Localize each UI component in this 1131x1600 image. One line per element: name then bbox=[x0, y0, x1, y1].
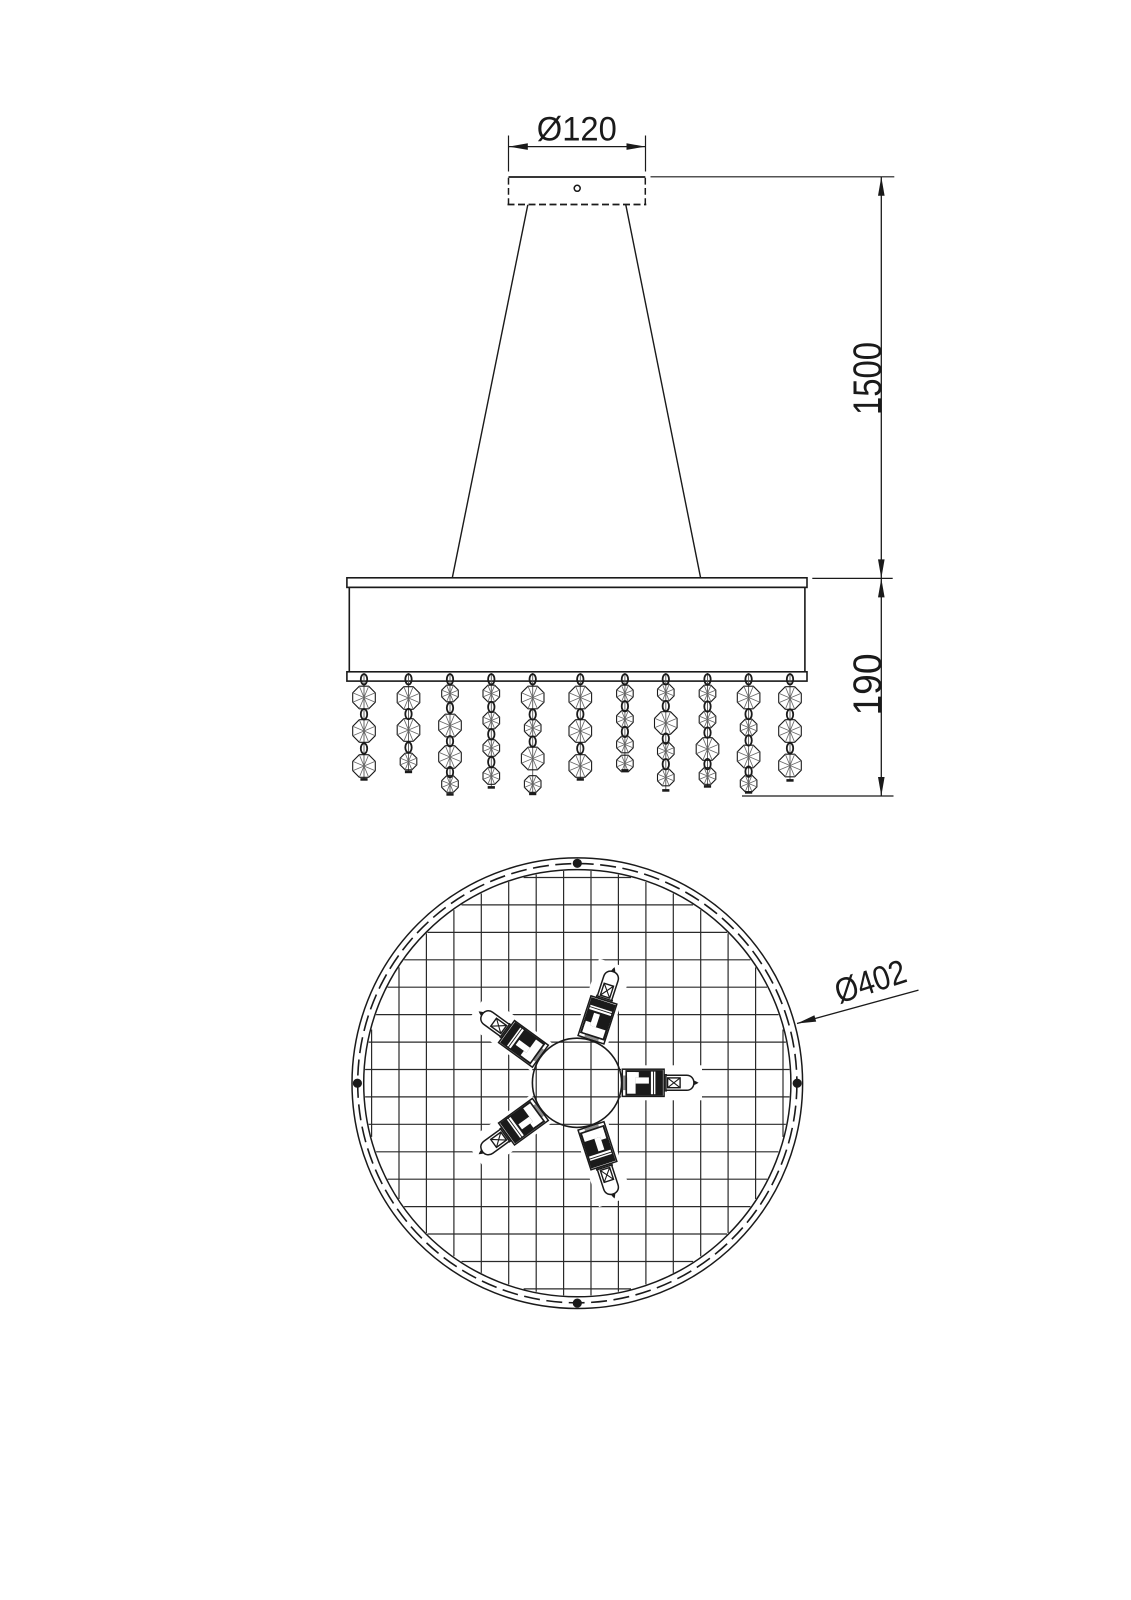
svg-text:1500: 1500 bbox=[846, 342, 890, 415]
svg-text:Ø402: Ø402 bbox=[830, 953, 911, 1012]
svg-text:Ø120: Ø120 bbox=[537, 111, 617, 149]
svg-text:190: 190 bbox=[846, 654, 890, 716]
